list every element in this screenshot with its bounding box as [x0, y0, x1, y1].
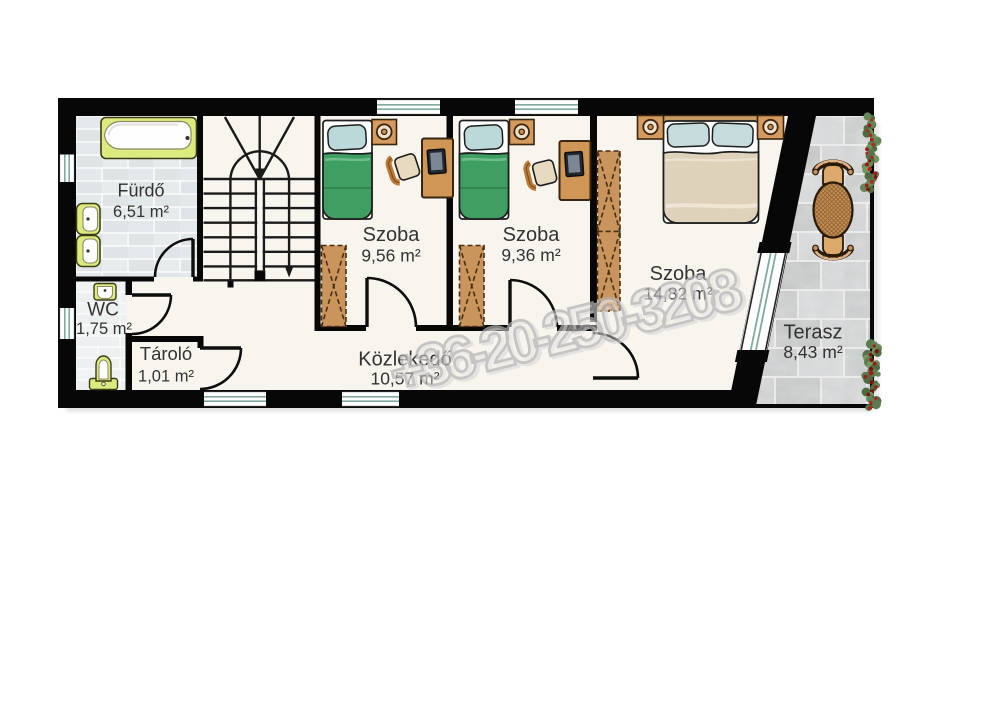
svg-text:Terasz: Terasz — [784, 322, 843, 344]
svg-text:1,01 m²: 1,01 m² — [138, 368, 194, 386]
svg-text:Tároló: Tároló — [140, 343, 192, 364]
svg-text:WC: WC — [87, 300, 119, 321]
svg-text:9,36 m²: 9,36 m² — [501, 245, 560, 265]
svg-text:Szoba: Szoba — [363, 224, 421, 246]
svg-text:8,43 m²: 8,43 m² — [783, 342, 842, 362]
svg-text:9,56 m²: 9,56 m² — [361, 246, 420, 266]
svg-text:Fürdő: Fürdő — [117, 181, 164, 201]
svg-text:6,51 m²: 6,51 m² — [113, 203, 169, 221]
svg-text:1,75 m²: 1,75 m² — [76, 320, 132, 338]
svg-text:Szoba: Szoba — [503, 224, 561, 246]
